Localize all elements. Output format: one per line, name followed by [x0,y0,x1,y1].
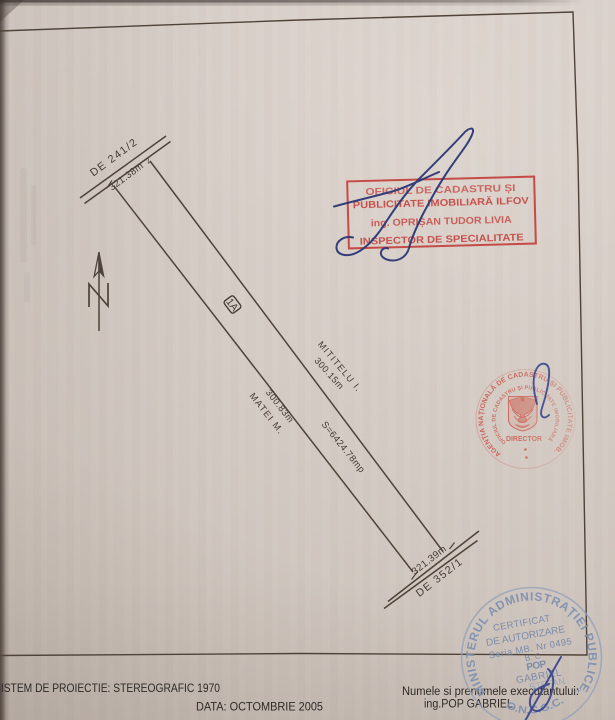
svg-text:DIRECTOR: DIRECTOR [506,436,542,443]
svg-text:PUBLICITATE IMOBILIARĂ ILFOV: PUBLICITATE IMOBILIARĂ ILFOV [353,196,530,212]
svg-text:DATA: OCTOMBRIE 2005: DATA: OCTOMBRIE 2005 [196,702,323,714]
svg-text:S=6424.78mp: S=6424.78mp [320,419,368,475]
svg-text:ing.POP GABRIEL: ing.POP GABRIEL [424,699,514,711]
svg-text:SISTEM DE PROIECTIE: STEREOGRA: SISTEM DE PROIECTIE: STEREOGRAFIC 1970 [0,683,220,695]
svg-text:+: + [576,686,581,696]
svg-text:2: 2 [144,156,153,166]
svg-text:ing. OPRIȘAN TUDOR LIVIA: ing. OPRIȘAN TUDOR LIVIA [371,215,512,230]
